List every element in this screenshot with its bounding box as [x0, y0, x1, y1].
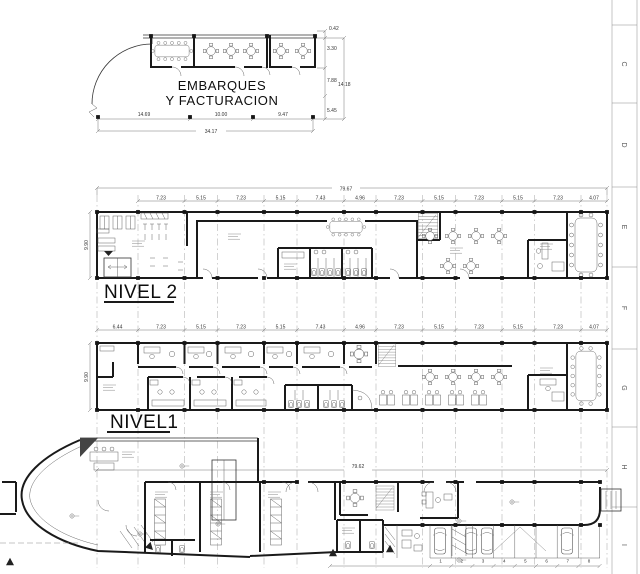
dim-label: 5.15 [513, 325, 523, 331]
dim-label: 9.90 [84, 372, 90, 382]
round-work-tables [203, 43, 310, 58]
room-title-line1: EMBARQUES [178, 78, 266, 93]
dim-label: 7.23 [236, 325, 246, 331]
embarques-plan: EMBARQUES Y FACTURACION 14.69 10.00 9.47… [89, 26, 351, 135]
nivel1-plan: 6.44 7.23 5.15 7.23 5.15 7.43 4.96 7.23 … [84, 325, 609, 434]
dim-label: 7.23 [394, 325, 404, 331]
nivel2-plan: 79.67 7.23 5.15 7.23 5.15 7.43 4.96 7.23… [84, 186, 609, 303]
dim-label: 7.23 [474, 196, 484, 202]
dim-label: 7.23 [236, 196, 246, 202]
dim-label: 7.43 [316, 325, 326, 331]
dim-label: 7.23 [553, 325, 563, 331]
dim-label: 4.07 [589, 325, 599, 331]
dim-total-label: 79.62 [352, 464, 365, 470]
reception-area [22, 438, 258, 557]
stall-number: 5 [524, 559, 527, 564]
dim-total-label: 79.67 [340, 187, 353, 193]
dim-label: 7.23 [156, 325, 166, 331]
columns [262, 480, 602, 527]
stall-number: 3 [482, 559, 485, 564]
grid-letter: C [620, 61, 627, 66]
dim-label: 5.15 [276, 325, 286, 331]
elevator [104, 258, 131, 277]
dim-label: 4.07 [589, 196, 599, 202]
dim-label: 3.30 [327, 46, 337, 52]
meeting-table [326, 218, 365, 236]
grid-letter: G [620, 385, 627, 390]
storage-rooms [150, 482, 290, 556]
site-edge [0, 482, 337, 565]
dim-label: 7.23 [474, 325, 484, 331]
dim-label: 7.88 [327, 78, 337, 84]
dim-label: 6.44 [113, 325, 123, 331]
architectural-sheet: C D E F G H I EMBARQUES Y FACTURACION 14… [0, 0, 640, 574]
dim-label: 9.90 [84, 240, 90, 250]
ground-restrooms [342, 528, 375, 549]
room-title-line2: Y FACTURACION [165, 93, 278, 108]
workstation-clusters [380, 369, 507, 405]
dim-label: 5.15 [434, 325, 444, 331]
office-row-top [144, 347, 334, 359]
dim-label: 5.15 [196, 325, 206, 331]
dim-label: 10.00 [215, 112, 228, 118]
stall-number: 2 [461, 559, 464, 564]
stairwell [378, 343, 395, 366]
meeting-room [350, 345, 367, 362]
dim-label: 7.43 [316, 196, 326, 202]
dim-label: 14.69 [138, 112, 151, 118]
office-row-bottom [150, 380, 266, 406]
stall-number: 7 [567, 559, 570, 564]
guard-area [402, 530, 422, 551]
sheet-border-strip: C D E F G H I [612, 0, 637, 574]
workstation-clusters [422, 228, 506, 273]
parking-stalls: 1 2 3 4 5 6 7 8 [328, 525, 602, 568]
exterior-stair [601, 489, 621, 511]
grid-letter: I [620, 544, 627, 546]
stall-number: 6 [545, 559, 548, 564]
ground-floor-plan: 79.62 [0, 438, 621, 568]
dim-label: 5.15 [196, 196, 206, 202]
dim-label: 7.23 [553, 196, 563, 202]
grid-letter: H [620, 464, 627, 469]
grid-letter: D [620, 142, 627, 147]
stall-number: 4 [503, 559, 506, 564]
level-label-nivel1: NIVEL1 [110, 412, 178, 433]
gym-area [97, 213, 183, 277]
dim-label: 5.15 [513, 196, 523, 202]
private-office [540, 368, 564, 401]
dim-label: 4.96 [355, 196, 365, 202]
dim-label: 5.15 [434, 196, 444, 202]
stall-number: 1 [439, 559, 442, 564]
grid-letter: F [620, 306, 627, 310]
dim-label: 7.23 [156, 196, 166, 202]
dim-label: 4.96 [355, 325, 365, 331]
private-office [536, 243, 564, 271]
dim-label: 5.15 [276, 196, 286, 202]
level-label-nivel2: NIVEL 2 [104, 282, 178, 303]
dim-label: 7.23 [394, 196, 404, 202]
restrooms [282, 250, 367, 278]
dim-label: 14.18 [338, 82, 351, 88]
stall-number: 8 [588, 559, 591, 564]
grid-letter: E [620, 225, 627, 230]
floor-plan-drawing: C D E F G H I EMBARQUES Y FACTURACION 14… [0, 0, 640, 574]
dim-label: 9.47 [278, 112, 288, 118]
boardroom [570, 213, 603, 277]
dim-label: 5.45 [327, 108, 337, 114]
dim-total-label: 34.17 [205, 129, 218, 135]
dim-label: 0.42 [329, 26, 339, 32]
boardroom [571, 347, 601, 406]
column-grid-lines [97, 195, 607, 568]
ground-offices [347, 486, 520, 510]
ramp-hatch [383, 525, 397, 558]
conference-table [151, 41, 193, 60]
